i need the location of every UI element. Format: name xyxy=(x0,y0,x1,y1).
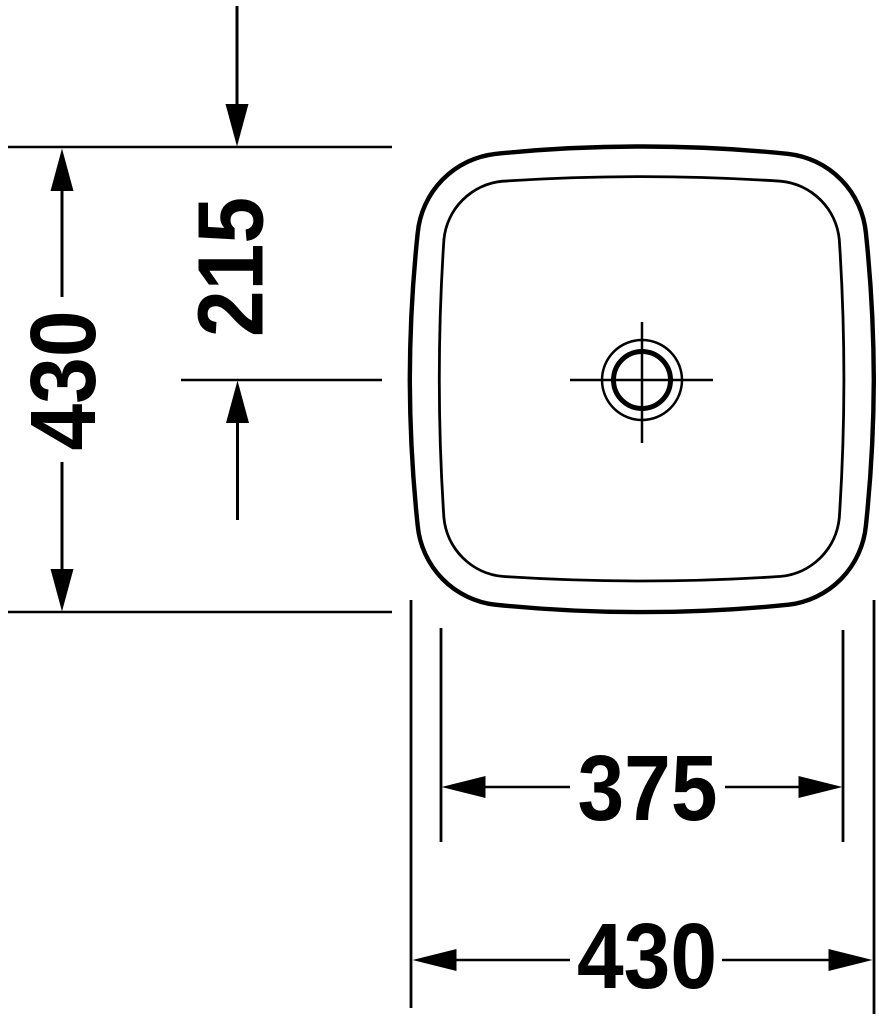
svg-text:215: 215 xyxy=(178,197,282,337)
svg-text:430: 430 xyxy=(577,904,717,1008)
svg-text:430: 430 xyxy=(11,311,115,451)
svg-text:375: 375 xyxy=(578,736,718,840)
